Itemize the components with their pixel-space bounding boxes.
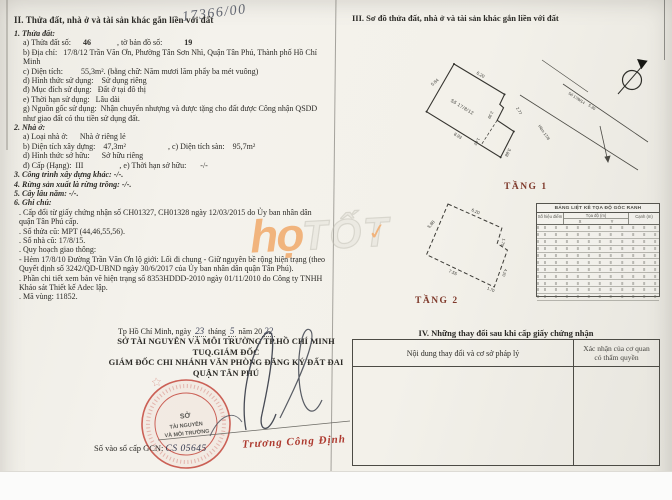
floor2-label: TẦNG 2 — [415, 296, 459, 306]
perennial-heading: 5. Cây lâu năm: -/-. — [14, 189, 328, 198]
col-coord: Tọa độ (m) XY — [564, 213, 629, 224]
note-region-code: . Mã vùng: 11852. — [14, 292, 328, 301]
coordinate-row — [537, 225, 659, 232]
floor1-dim-notch: 2.39 — [486, 110, 494, 120]
changes-table: Nội dung thay đổi và cơ sở pháp lý Xác n… — [352, 339, 660, 466]
floor1-plan-diagram: 6.20 5.84 8.93 3.88 2.39 1.02 Số 17/8/12… — [392, 46, 652, 198]
floor1-parcel-label: Số 17/8/12 — [450, 98, 475, 116]
floor2-dim-left: 5.88 — [426, 219, 436, 229]
gcn-entry-line: Số vào sổ cấp GCN: CS 05645 — [94, 443, 207, 454]
coordinate-row — [537, 273, 659, 280]
coordinate-row — [537, 246, 659, 253]
changes-body-left-cell — [353, 367, 574, 465]
col-point: Số hiệu điểm — [537, 213, 564, 224]
address-line: b) Địa chỉ: 17/8/12 Trần Văn Ơn, Phường … — [14, 48, 328, 67]
floor2-dim-bottom: 7.55 — [448, 268, 458, 276]
use-term-line: e) Thời hạn sử dụng: Lâu dài — [14, 95, 328, 104]
floor1-dim-step: 1.02 — [473, 137, 481, 147]
scan-edge-left — [6, 0, 8, 150]
forest-heading: 4. Rừng sản xuất là rừng trồng: -/-. — [14, 180, 328, 189]
map-sheet-value: 19 — [184, 38, 192, 47]
house-grade-line: đ) Cấp (Hạng): III , e) Thời hạn sở hữu:… — [14, 161, 328, 170]
section-2-title: II. Thửa đất, nhà ở và tài sản khác gắn … — [14, 15, 328, 25]
section-3-title: III. Sơ đồ thửa đất, nhà ở và tài sản kh… — [352, 13, 664, 23]
coordinate-table: BẢNG LIỆT KÊ TỌA ĐỘ GÓC RANH Số hiệu điể… — [536, 203, 660, 297]
gcn-handwritten-value: CS 05645 — [166, 444, 207, 454]
col-edge: Cạnh (m) — [629, 213, 659, 224]
parcel-number-value: 46 — [83, 38, 91, 47]
changes-table-body — [353, 367, 659, 465]
coordinate-row — [537, 280, 659, 287]
watermark-cho: họ — [249, 208, 304, 263]
coordinate-row — [537, 259, 659, 266]
note-survey-drawing: . Phần chi tiết xem bản vẽ hiện trạng số… — [14, 274, 328, 293]
coordinate-row — [537, 266, 659, 273]
floor2-dim-r2: 4.20 — [501, 268, 508, 278]
coordinate-row — [537, 294, 659, 301]
coordinate-row — [537, 253, 659, 260]
parcel-heading: 1. Thửa đất: — [14, 29, 328, 38]
coordinate-row — [537, 287, 659, 294]
scanned-land-certificate: 17366/00 II. Thửa đất, nhà ở và tài sản … — [0, 0, 672, 500]
use-origin-line: g) Nguồn gốc sử dụng: Nhận chuyển nhượng… — [14, 104, 328, 123]
house-heading: 2. Nhà ở: — [14, 123, 328, 132]
parcel-number-line: a) Thửa đất số: 46 , tờ bản đồ số: 19 — [14, 38, 328, 47]
house-build-area-line: b) Diện tích xây dựng: 47,3m² , c) Diện … — [14, 142, 328, 151]
coordinate-row — [537, 239, 659, 246]
use-purpose-line: đ) Mục đích sử dụng: Đất ở tại đô thị — [14, 85, 328, 94]
use-form-line: d) Hình thức sử dụng: Sử dụng riêng — [14, 76, 328, 85]
notes-heading: 6. Ghi chú: — [14, 198, 328, 207]
col-y: Y — [596, 219, 628, 224]
check-icon: ✓ — [366, 218, 388, 247]
floor1-dim-out: 2.77 — [515, 106, 523, 116]
coordinate-table-title: BẢNG LIỆT KÊ TỌA ĐỘ GÓC RANH — [537, 204, 659, 213]
floor1-alley-length: 5.30 — [587, 103, 597, 112]
section-4-title: IV. Những thay đổi sau khi cấp giấy chứn… — [352, 328, 660, 338]
camscanner-footer: CS Được quét bằng CamScanner — [0, 471, 672, 500]
area-line: c) Diện tích: 55,3m². (bằng chữ: Năm mươ… — [14, 67, 328, 76]
changes-col-confirmation: Xác nhận của cơ quan có thẩm quyền — [574, 340, 659, 366]
other-works-heading: 3. Công trình xây dựng khác: -/-. — [14, 170, 328, 179]
coordinate-table-header: Số hiệu điểm Tọa độ (m) XY Cạnh (m) — [537, 213, 659, 225]
floor1-alley-label: Hẻm 17/8 — [537, 124, 551, 142]
chotot-watermark: họTỐT ✓ — [249, 202, 392, 263]
changes-col-content: Nội dung thay đổi và cơ sở pháp lý — [353, 340, 574, 366]
house-type-line: a) Loại nhà ở: Nhà ở riêng lẻ — [14, 132, 328, 141]
floor1-label: TẦNG 1 — [504, 182, 548, 192]
house-ownership-line: d) Hình thức sở hữu: Sở hữu riêng — [14, 151, 328, 160]
col-x: X — [564, 219, 596, 224]
coordinate-row — [537, 232, 659, 239]
changes-table-header: Nội dung thay đổi và cơ sở pháp lý Xác n… — [353, 340, 659, 367]
scan-edge-right — [664, 0, 665, 60]
floor1-dim-left: 5.84 — [430, 77, 440, 87]
gcn-label: Số vào sổ cấp GCN: — [94, 443, 163, 453]
